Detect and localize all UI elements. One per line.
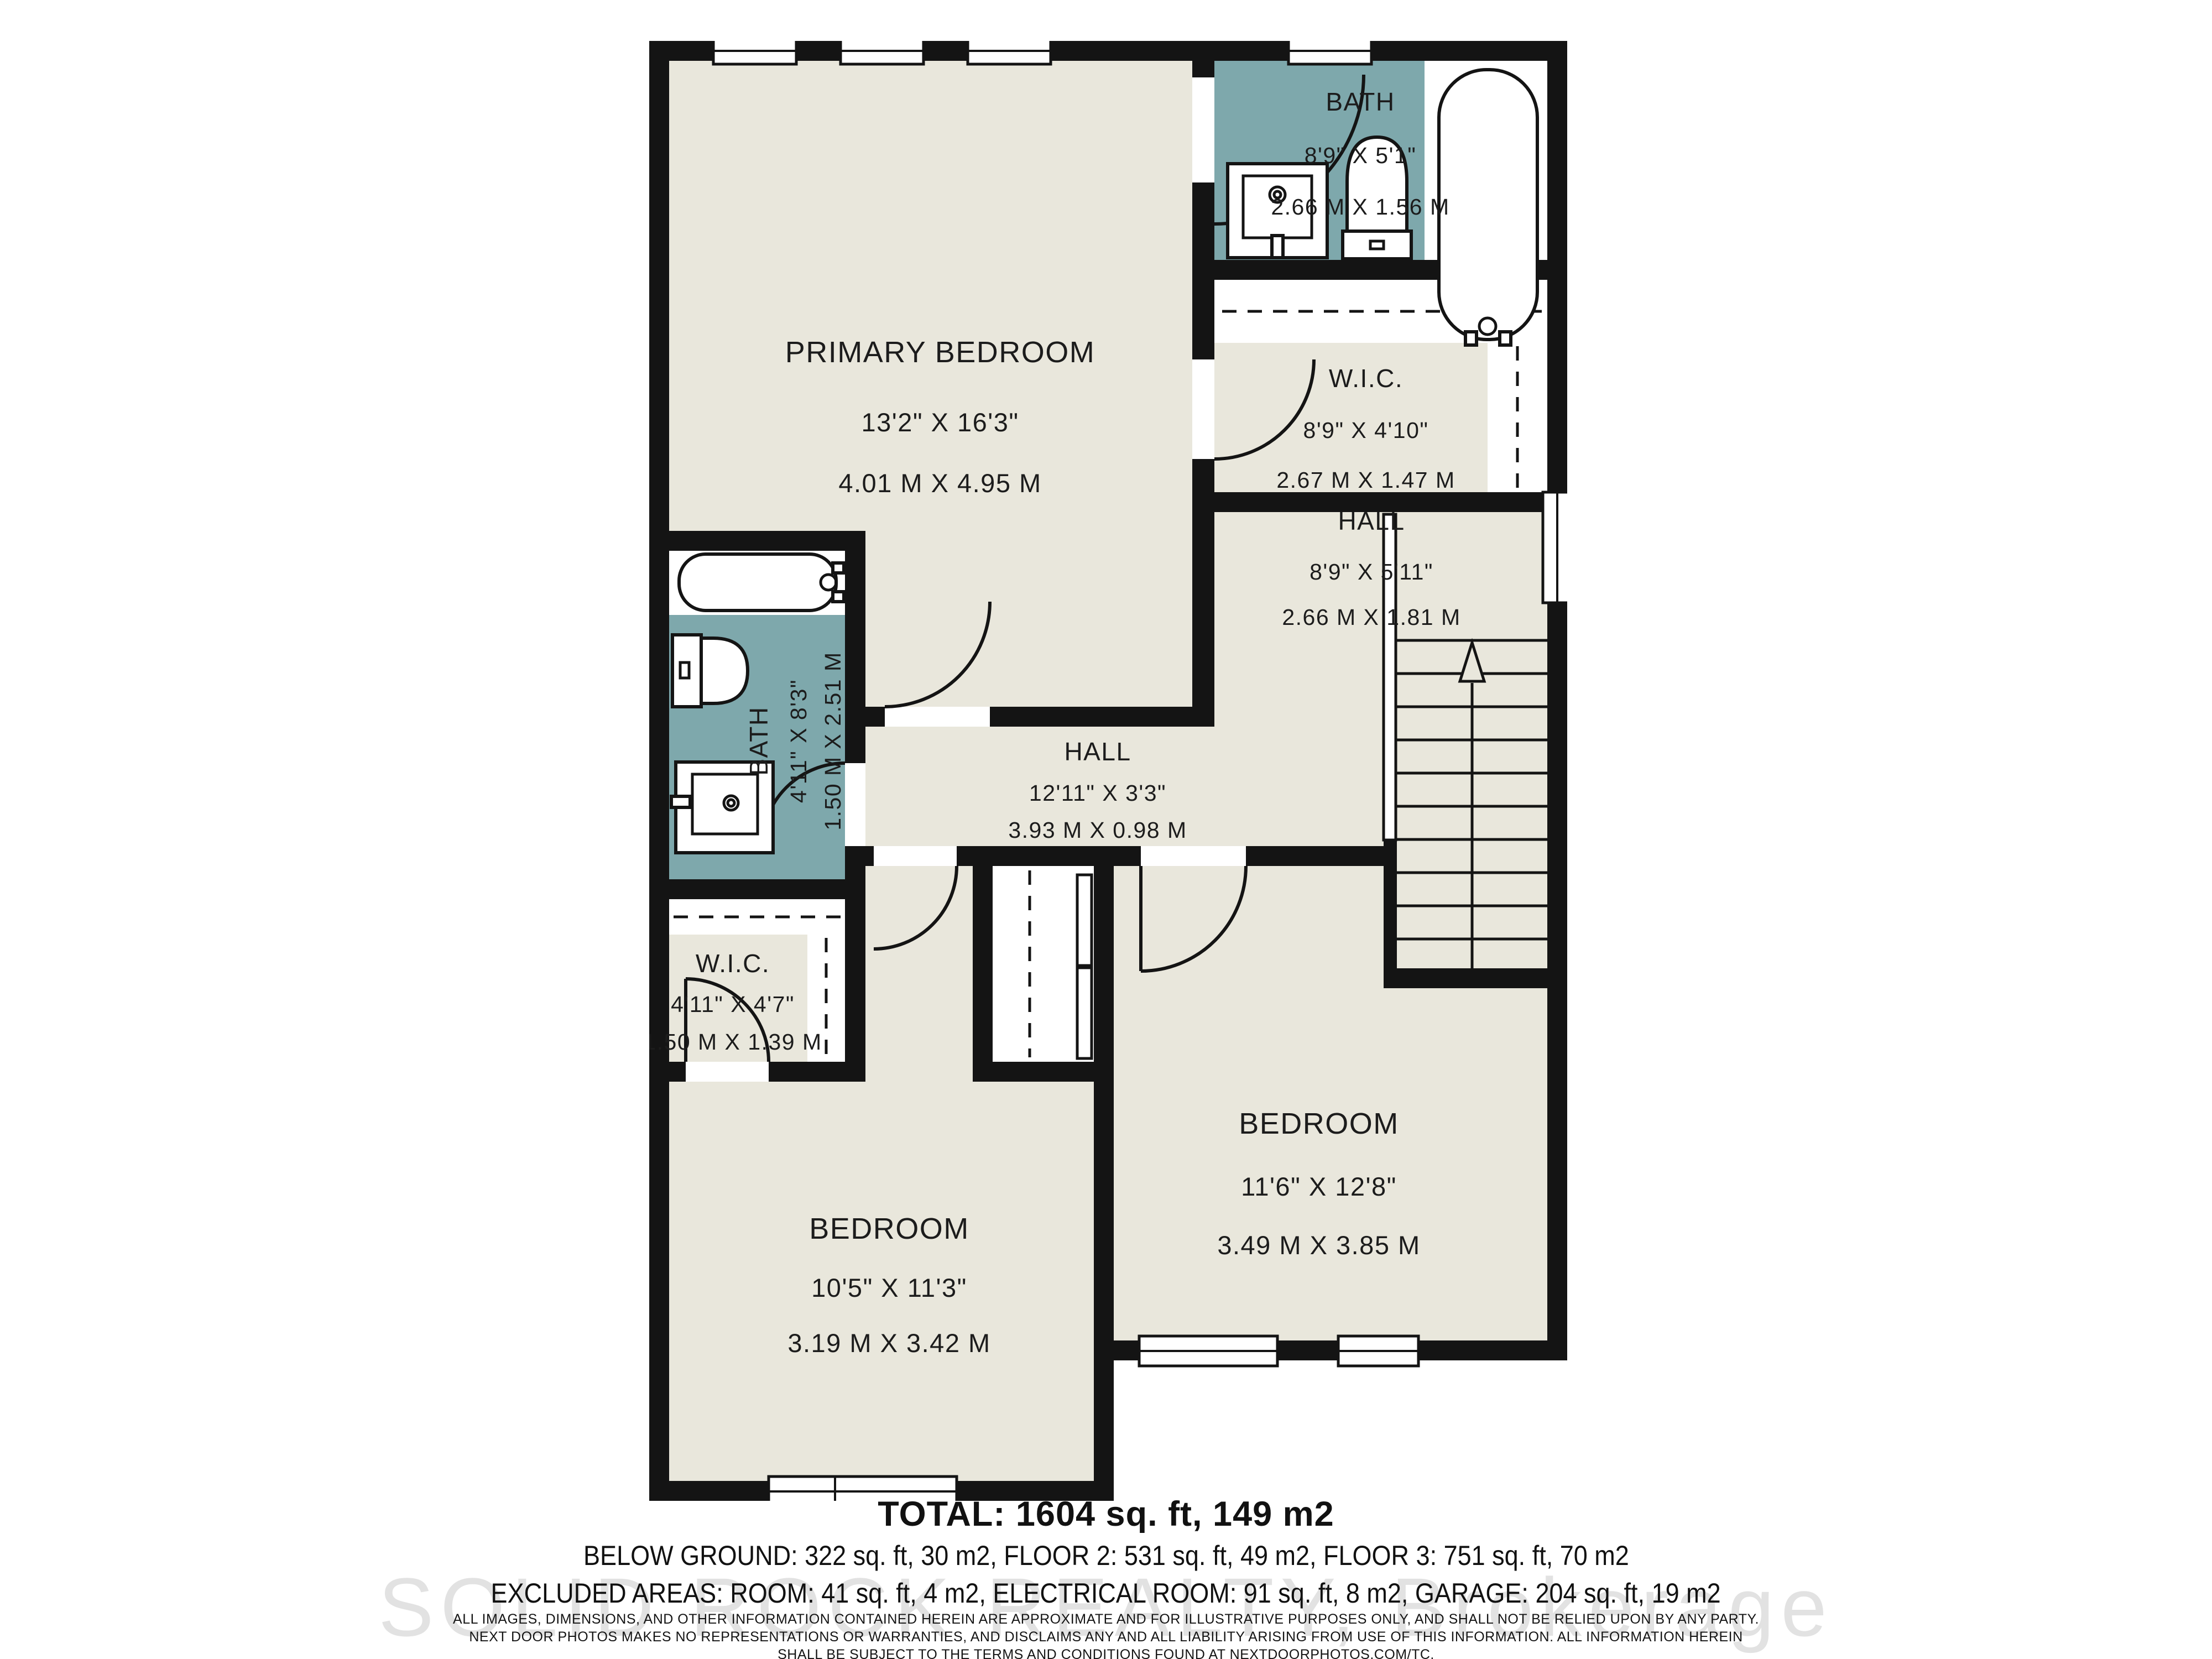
label-bedroom-right: BEDROOM [1239, 1107, 1399, 1140]
door-opening-primary-bedroom [885, 707, 990, 727]
label-bedroom-left: BEDROOM [809, 1212, 969, 1245]
disclaimer-line-3: SHALL BE SUBJECT TO THE TERMS AND CONDIT… [0, 1646, 2212, 1659]
door-opening-wic-left [686, 1062, 769, 1082]
bathtub-icon-ensuite [1439, 70, 1537, 340]
door-opening-bath-ensuite [1192, 77, 1214, 182]
label-hall-center-imperial: 12'11" X 3'3" [1029, 780, 1166, 806]
label-hall-upper-imperial: 8'9" X 5'11" [1310, 559, 1433, 585]
disclaimer-line-2: NEXT DOOR PHOTOS MAKES NO REPRESENTATION… [0, 1628, 2212, 1646]
bifold-door-leaf-2 [1077, 968, 1092, 1058]
label-bedroom-left-metric: 3.19 M X 3.42 M [787, 1328, 990, 1358]
bathtub-icon-main [679, 554, 836, 611]
label-bedroom-right-metric: 3.49 M X 3.85 M [1217, 1230, 1420, 1260]
door-opening-corridor [874, 846, 957, 866]
label-bedroom-left-imperial: 10'5" X 11'3" [811, 1273, 967, 1302]
label-primary-bedroom: PRIMARY BEDROOM [785, 336, 1095, 369]
window-bath-ensuite [1288, 41, 1371, 64]
toilet-icon-main [672, 635, 701, 707]
floor-plan-drawing: PRIMARY BEDROOM 13'2" X 16'3" 4.01 M X 4… [649, 41, 1567, 1501]
door-opening-bath-main [845, 763, 865, 846]
label-primary-bedroom-imperial: 13'2" X 16'3" [861, 408, 1019, 437]
label-hall-center-metric: 3.93 M X 0.98 M [1008, 817, 1187, 843]
window-hall-upper [1543, 492, 1567, 603]
label-bath-ensuite-imperial: 8'9" X 5'1" [1305, 143, 1417, 168]
label-wic-primary-metric: 2.67 M X 1.47 M [1276, 467, 1455, 493]
excluded-areas-text: EXCLUDED AREAS: ROOM: 41 sq. ft, 4 m2, E… [0, 1577, 2212, 1609]
disclaimer-text: ALL IMAGES, DIMENSIONS, AND OTHER INFORM… [0, 1610, 2212, 1659]
label-bath-main-imperial: 4'11" X 8'3" [786, 679, 811, 803]
label-hall-upper-metric: 2.66 M X 1.81 M [1282, 604, 1460, 630]
room-area-bedroom-right [1114, 866, 1547, 1340]
label-wic-primary: W.I.C. [1329, 364, 1403, 393]
disclaimer-line-1: ALL IMAGES, DIMENSIONS, AND OTHER INFORM… [0, 1610, 2212, 1628]
label-bath-main-metric: 1.50 M X 2.51 M [820, 651, 846, 830]
label-wic-left-metric: 1.50 M X 1.39 M [649, 1029, 822, 1055]
label-primary-bedroom-metric: 4.01 M X 4.95 M [838, 468, 1041, 498]
label-wic-primary-imperial: 8'9" X 4'10" [1303, 418, 1429, 443]
door-opening-bedroom-right [1141, 846, 1246, 866]
label-bedroom-right-imperial: 11'6" X 12'8" [1241, 1172, 1397, 1201]
floor-areas-text-line: BELOW GROUND: 322 sq. ft, 30 m2, FLOOR 2… [583, 1540, 1629, 1572]
label-hall-center: HALL [1064, 737, 1131, 766]
window-primary-3 [968, 41, 1051, 64]
label-bath-ensuite: BATH [1326, 87, 1395, 116]
door-opening-wic-primary [1192, 359, 1214, 459]
closet-strip-wic-primary-side [1488, 343, 1547, 492]
label-hall-upper: HALL [1338, 507, 1405, 535]
label-bath-ensuite-metric: 2.66 M X 1.56 M [1271, 194, 1449, 220]
window-primary-1 [713, 41, 796, 64]
window-primary-2 [841, 41, 924, 64]
floor-areas-text: BELOW GROUND: 322 sq. ft, 30 m2, FLOOR 2… [0, 1540, 2212, 1572]
floorplan-page: SOLID ROCK REALTY, Brokerage [0, 0, 2212, 1659]
label-wic-left-imperial: 4'11" X 4'7" [671, 992, 795, 1017]
label-bath-main: BATH [744, 706, 773, 775]
room-area-corridor [865, 866, 973, 1082]
bifold-door-leaf-1 [1077, 875, 1092, 966]
total-area-text: TOTAL: 1604 sq. ft, 149 m2 [0, 1494, 2212, 1534]
label-wic-left: W.I.C. [696, 949, 770, 978]
excluded-areas-text-line: EXCLUDED AREAS: ROOM: 41 sq. ft, 4 m2, E… [491, 1577, 1721, 1609]
